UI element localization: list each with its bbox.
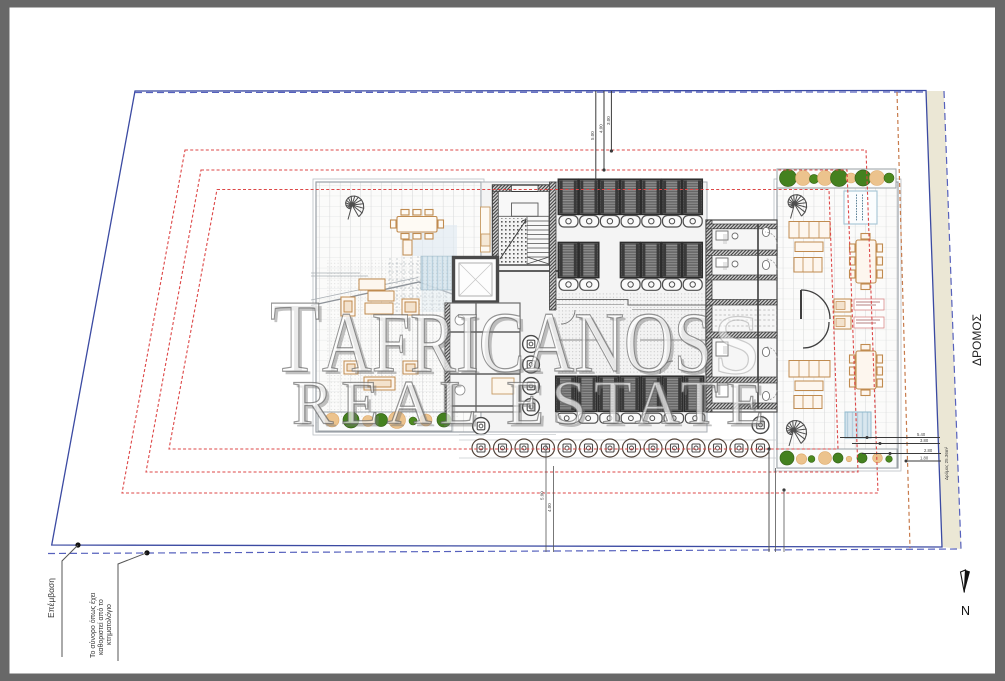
svg-text:Επέμβαση: Επέμβαση	[46, 578, 56, 618]
svg-text:N: N	[961, 604, 970, 618]
svg-text:1.80: 1.80	[920, 456, 929, 461]
svg-text:κτηματολόγιο: κτηματολόγιο	[105, 604, 113, 645]
svg-text:2.80: 2.80	[924, 448, 933, 453]
svg-text:5.00: 5.00	[590, 131, 595, 140]
svg-text:Το σύνορο όπως έχει: Το σύνορο όπως έχει	[89, 592, 97, 658]
svg-text:S: S	[713, 296, 761, 392]
svg-text:Δρόμος 25.36m²: Δρόμος 25.36m²	[943, 446, 949, 480]
svg-text:3.00: 3.00	[606, 116, 611, 125]
svg-text:3.80: 3.80	[920, 438, 929, 443]
svg-text:REAL ESTATE: REAL ESTATE	[292, 370, 764, 438]
svg-text:4.00: 4.00	[598, 124, 603, 133]
svg-text:5.40: 5.40	[917, 432, 926, 437]
svg-text:καθοριστεί από το: καθοριστεί από το	[97, 599, 105, 655]
svg-text:5.00: 5.00	[540, 491, 545, 500]
svg-text:ΔΡΟΜΟΣ: ΔΡΟΜΟΣ	[970, 314, 984, 366]
svg-text:4.00: 4.00	[547, 503, 552, 512]
